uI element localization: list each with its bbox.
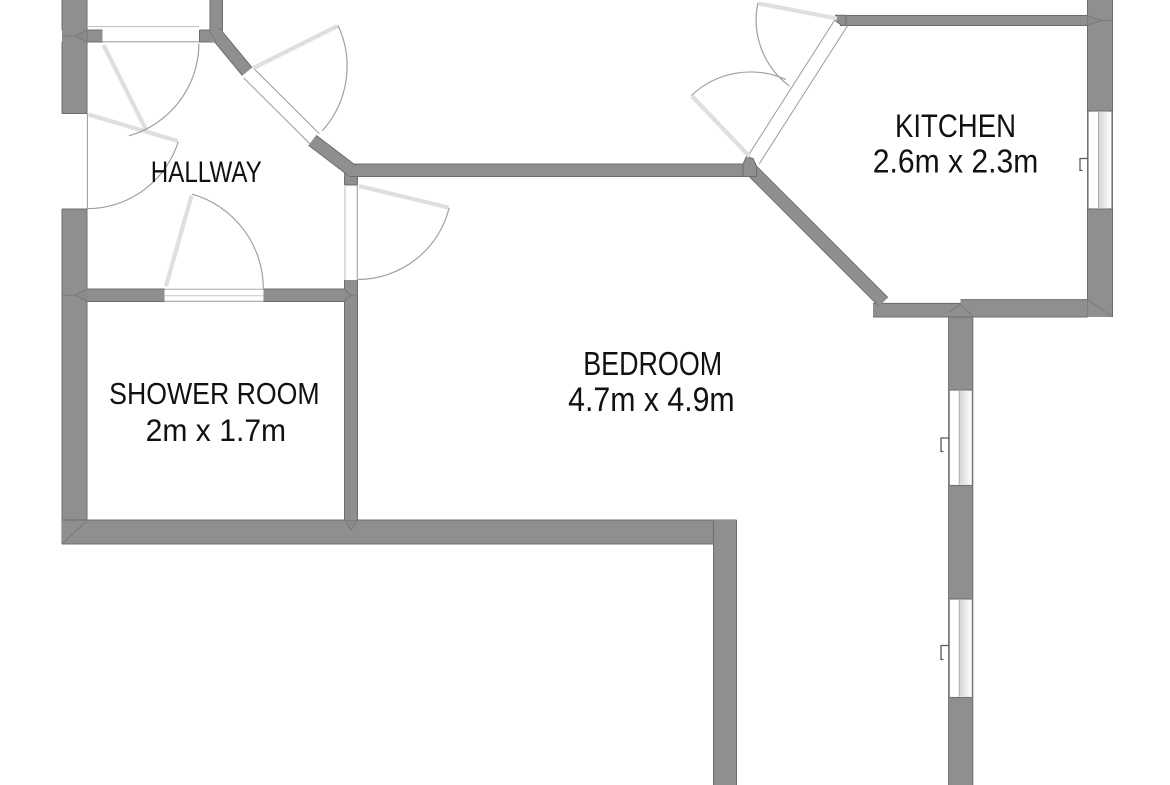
svg-text:BEDROOM: BEDROOM [583,346,722,383]
svg-text:2m x 1.7m: 2m x 1.7m [146,412,287,448]
svg-text:2.6m x 2.3m: 2.6m x 2.3m [873,144,1039,181]
svg-text:SHOWER ROOM: SHOWER ROOM [109,377,320,411]
svg-text:HALLWAY: HALLWAY [151,156,262,189]
svg-text:KITCHEN: KITCHEN [895,107,1016,144]
svg-text:4.7m x 4.9m: 4.7m x 4.9m [568,381,735,419]
